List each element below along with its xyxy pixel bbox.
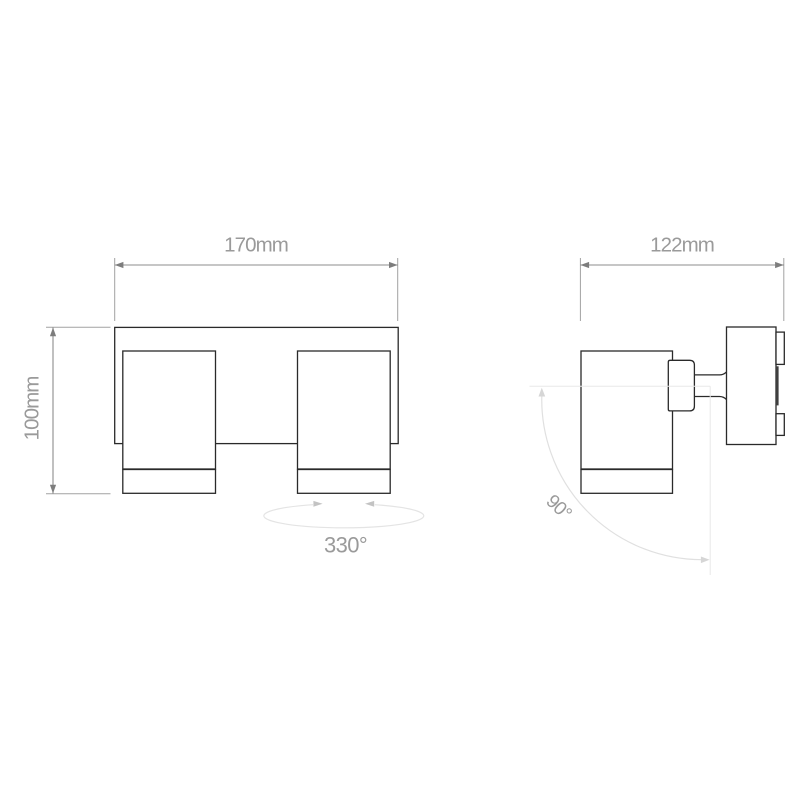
svg-text:90°: 90° (542, 491, 576, 525)
svg-text:170mm: 170mm (224, 234, 288, 257)
svg-text:100mm: 100mm (21, 377, 44, 441)
svg-text:330°: 330° (324, 533, 367, 558)
svg-text:122mm: 122mm (650, 234, 714, 257)
